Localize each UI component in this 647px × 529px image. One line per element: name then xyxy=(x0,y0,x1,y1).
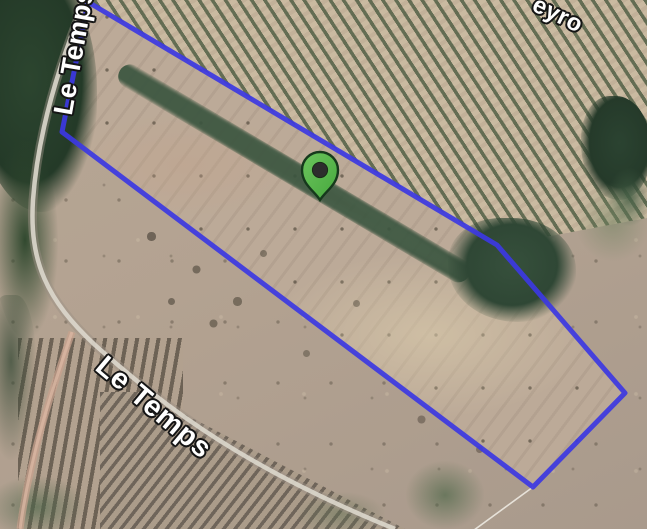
location-pin[interactable] xyxy=(302,152,338,200)
map-canvas[interactable]: Le Temps eyro Le Temps iAD IMMOBILIER xyxy=(0,0,647,529)
pin-center-dot xyxy=(312,162,327,177)
pin-layer xyxy=(0,0,647,529)
